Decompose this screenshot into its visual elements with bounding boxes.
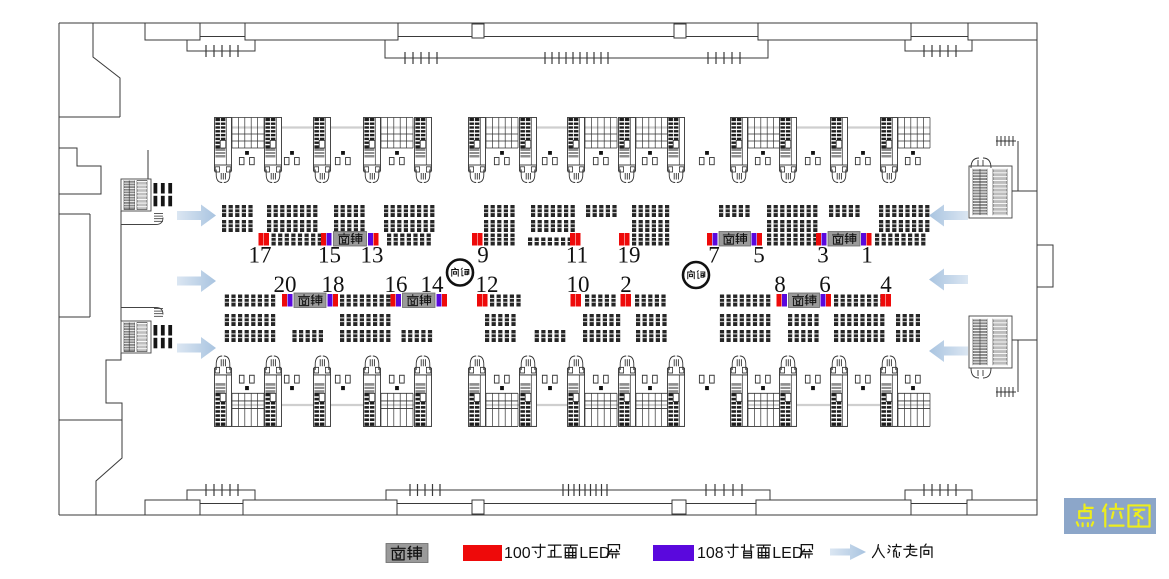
svg-text:7: 7 <box>708 243 720 268</box>
svg-text:11: 11 <box>566 243 588 268</box>
svg-text:5: 5 <box>753 243 765 268</box>
svg-text:LED: LED <box>579 545 610 562</box>
svg-text:8: 8 <box>774 272 786 297</box>
svg-text:3: 3 <box>817 243 829 268</box>
svg-text:10: 10 <box>567 272 590 297</box>
svg-text:6: 6 <box>819 272 831 297</box>
svg-text:20: 20 <box>274 272 297 297</box>
svg-text:2: 2 <box>620 272 632 297</box>
svg-text:17: 17 <box>249 243 272 268</box>
svg-text:LED: LED <box>772 545 803 562</box>
svg-text:1: 1 <box>861 243 873 268</box>
svg-text:15: 15 <box>318 243 341 268</box>
svg-text:4: 4 <box>880 272 892 297</box>
svg-text:16: 16 <box>385 272 408 297</box>
svg-text:19: 19 <box>618 243 641 268</box>
svg-text:13: 13 <box>361 243 384 268</box>
svg-text:12: 12 <box>476 272 499 297</box>
svg-text:100: 100 <box>504 545 531 562</box>
svg-text:108: 108 <box>697 545 724 562</box>
svg-text:9: 9 <box>477 243 489 268</box>
svg-text:14: 14 <box>421 272 445 297</box>
svg-text:18: 18 <box>322 272 345 297</box>
